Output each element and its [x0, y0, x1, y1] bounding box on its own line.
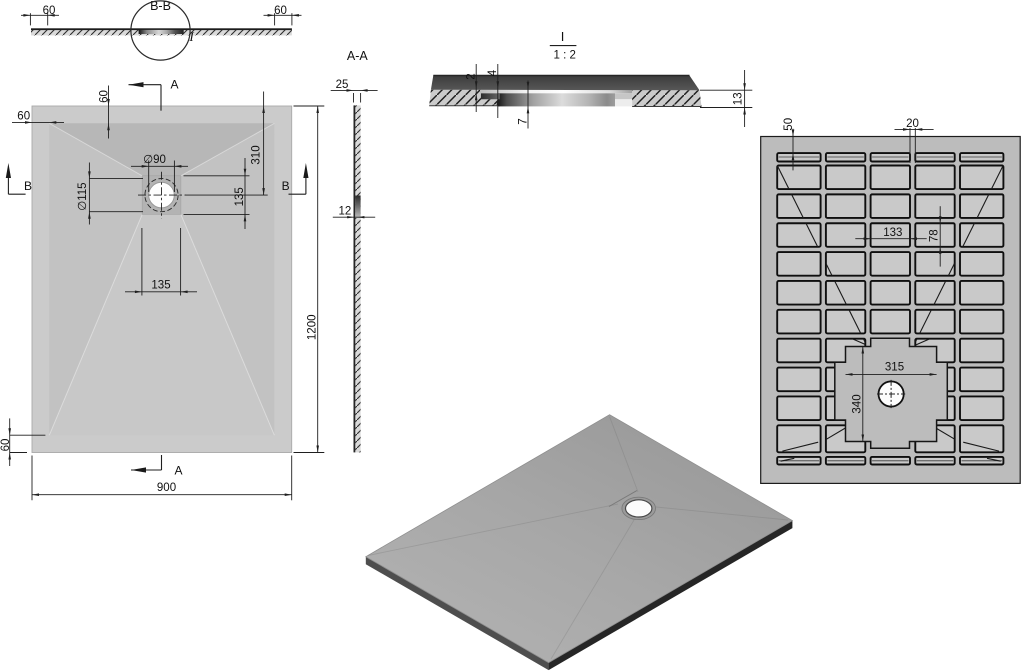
svg-text:135: 135	[234, 187, 246, 206]
svg-text:7: 7	[518, 118, 530, 124]
svg-text:I: I	[188, 29, 194, 44]
svg-text:B: B	[24, 179, 32, 193]
svg-text:A: A	[170, 78, 178, 92]
svg-text:I: I	[561, 29, 565, 44]
svg-text:60: 60	[274, 5, 287, 17]
svg-text:1200: 1200	[306, 315, 318, 341]
svg-text:133: 133	[883, 227, 902, 239]
svg-text:1 : 2: 1 : 2	[554, 50, 576, 62]
svg-text:60: 60	[99, 90, 111, 103]
svg-text:2: 2	[466, 73, 478, 79]
svg-text:60: 60	[43, 5, 56, 17]
svg-text:12: 12	[339, 206, 352, 218]
svg-text:135: 135	[151, 280, 170, 292]
svg-text:A: A	[174, 464, 182, 478]
svg-text:∅115: ∅115	[77, 182, 89, 210]
svg-text:25: 25	[336, 79, 349, 91]
svg-text:A-A: A-A	[347, 49, 369, 63]
svg-text:∅90: ∅90	[143, 154, 166, 166]
svg-text:78: 78	[929, 229, 941, 242]
svg-text:13: 13	[732, 92, 744, 105]
svg-text:310: 310	[250, 145, 262, 164]
svg-text:4: 4	[487, 69, 499, 76]
svg-text:50: 50	[783, 118, 795, 131]
svg-text:B: B	[282, 179, 290, 193]
svg-text:60: 60	[17, 111, 30, 123]
svg-text:900: 900	[157, 482, 176, 494]
svg-text:340: 340	[852, 394, 864, 413]
svg-text:315: 315	[885, 362, 904, 374]
svg-text:60: 60	[0, 439, 12, 452]
svg-text:20: 20	[906, 118, 919, 130]
